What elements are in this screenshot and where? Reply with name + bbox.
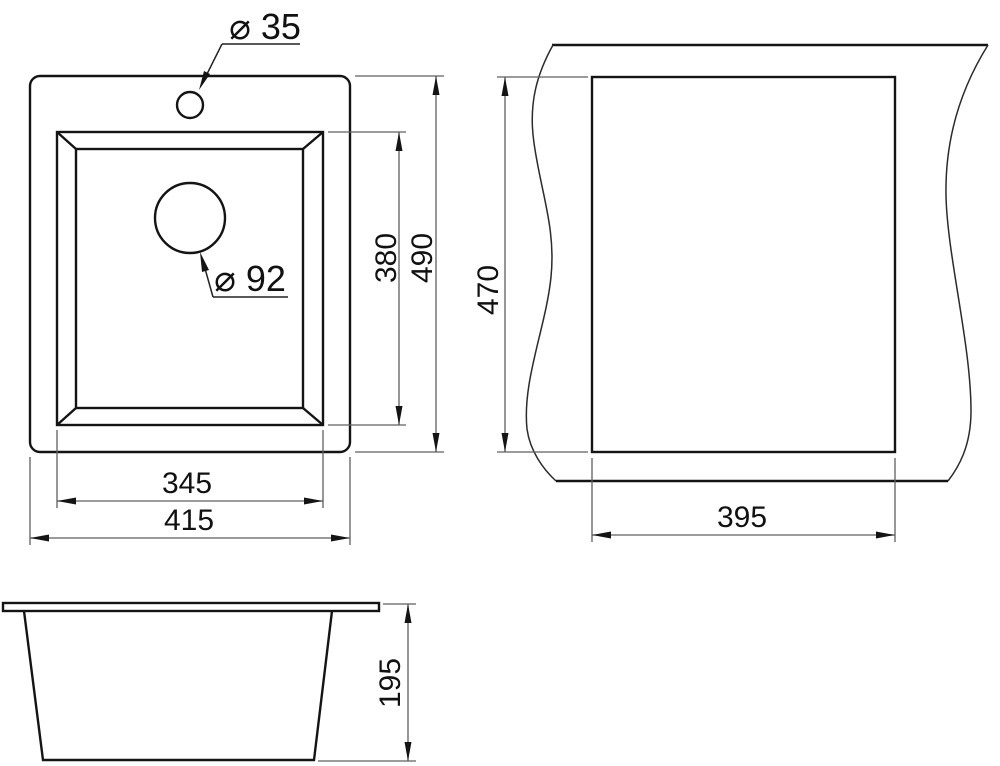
dimension-arrow [57, 498, 76, 505]
dimension-cutout-width: 395 [592, 458, 895, 542]
break-line-left [526, 45, 556, 481]
drain-hole-label: ⌀ 92 [214, 258, 286, 299]
dimension-text: 490 [406, 233, 439, 283]
dimension-arrow [396, 406, 403, 425]
dimension-text: 415 [164, 504, 214, 537]
dimension-text: 380 [370, 233, 403, 283]
dimension-arrow [30, 535, 49, 542]
dimension-arrow [433, 433, 440, 452]
technical-drawing-sheet: ⌀ 35 ⌀ 92 380 490 [0, 0, 1000, 766]
dimension-text: 345 [162, 467, 212, 500]
cutout-view: 470 395 [472, 45, 988, 542]
sink-dimension-drawing: ⌀ 35 ⌀ 92 380 490 [0, 0, 1000, 766]
leader-line [206, 44, 222, 76]
dimension-overall-height: 195 [318, 604, 416, 761]
dimension-arrow [502, 77, 509, 96]
cutout-outline [592, 77, 895, 452]
dimension-text: 470 [472, 265, 505, 315]
dimension-arrow [405, 742, 412, 761]
dimension-text: 195 [374, 658, 407, 708]
dimension-arrow [405, 604, 412, 623]
dimension-arrow [331, 535, 350, 542]
dimension-arrow [304, 498, 323, 505]
dimension-arrow [592, 532, 611, 539]
rim-profile [3, 603, 379, 611]
dimension-arrow [396, 132, 403, 151]
dimension-arrow [433, 76, 440, 95]
top-view: ⌀ 35 ⌀ 92 380 490 [30, 6, 444, 545]
faucet-hole-label: ⌀ 35 [229, 6, 301, 47]
dimension-arrow [502, 433, 509, 452]
side-view: 195 [3, 603, 416, 761]
dimension-arrow [876, 532, 895, 539]
dimension-text: 395 [717, 501, 767, 534]
drain-hole-callout: ⌀ 92 [200, 252, 288, 299]
break-line-right [946, 45, 988, 481]
bowl-profile [24, 611, 332, 760]
dimension-cutout-depth: 470 [472, 77, 588, 452]
